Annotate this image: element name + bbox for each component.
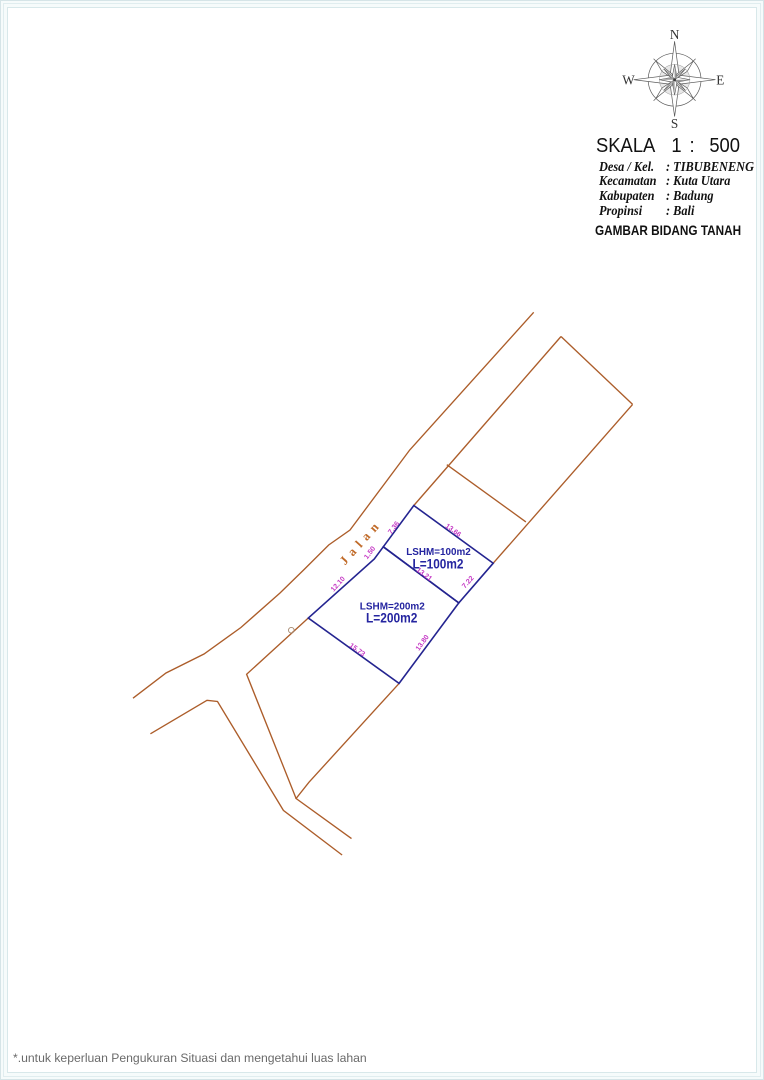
svg-text:13.66: 13.66 [444, 523, 462, 539]
svg-text:15.73: 15.73 [348, 642, 366, 658]
svg-text:7.36: 7.36 [387, 520, 401, 535]
svg-text:N: N [670, 27, 680, 42]
svg-text:L=200m2: L=200m2 [366, 611, 418, 626]
svg-text:S: S [671, 116, 678, 131]
svg-text:W: W [622, 73, 635, 88]
svg-text:7.22: 7.22 [461, 575, 476, 590]
svg-text:L=100m2: L=100m2 [413, 557, 464, 572]
svg-text:E: E [716, 73, 724, 88]
svg-text:Jalan: Jalan [337, 516, 385, 567]
